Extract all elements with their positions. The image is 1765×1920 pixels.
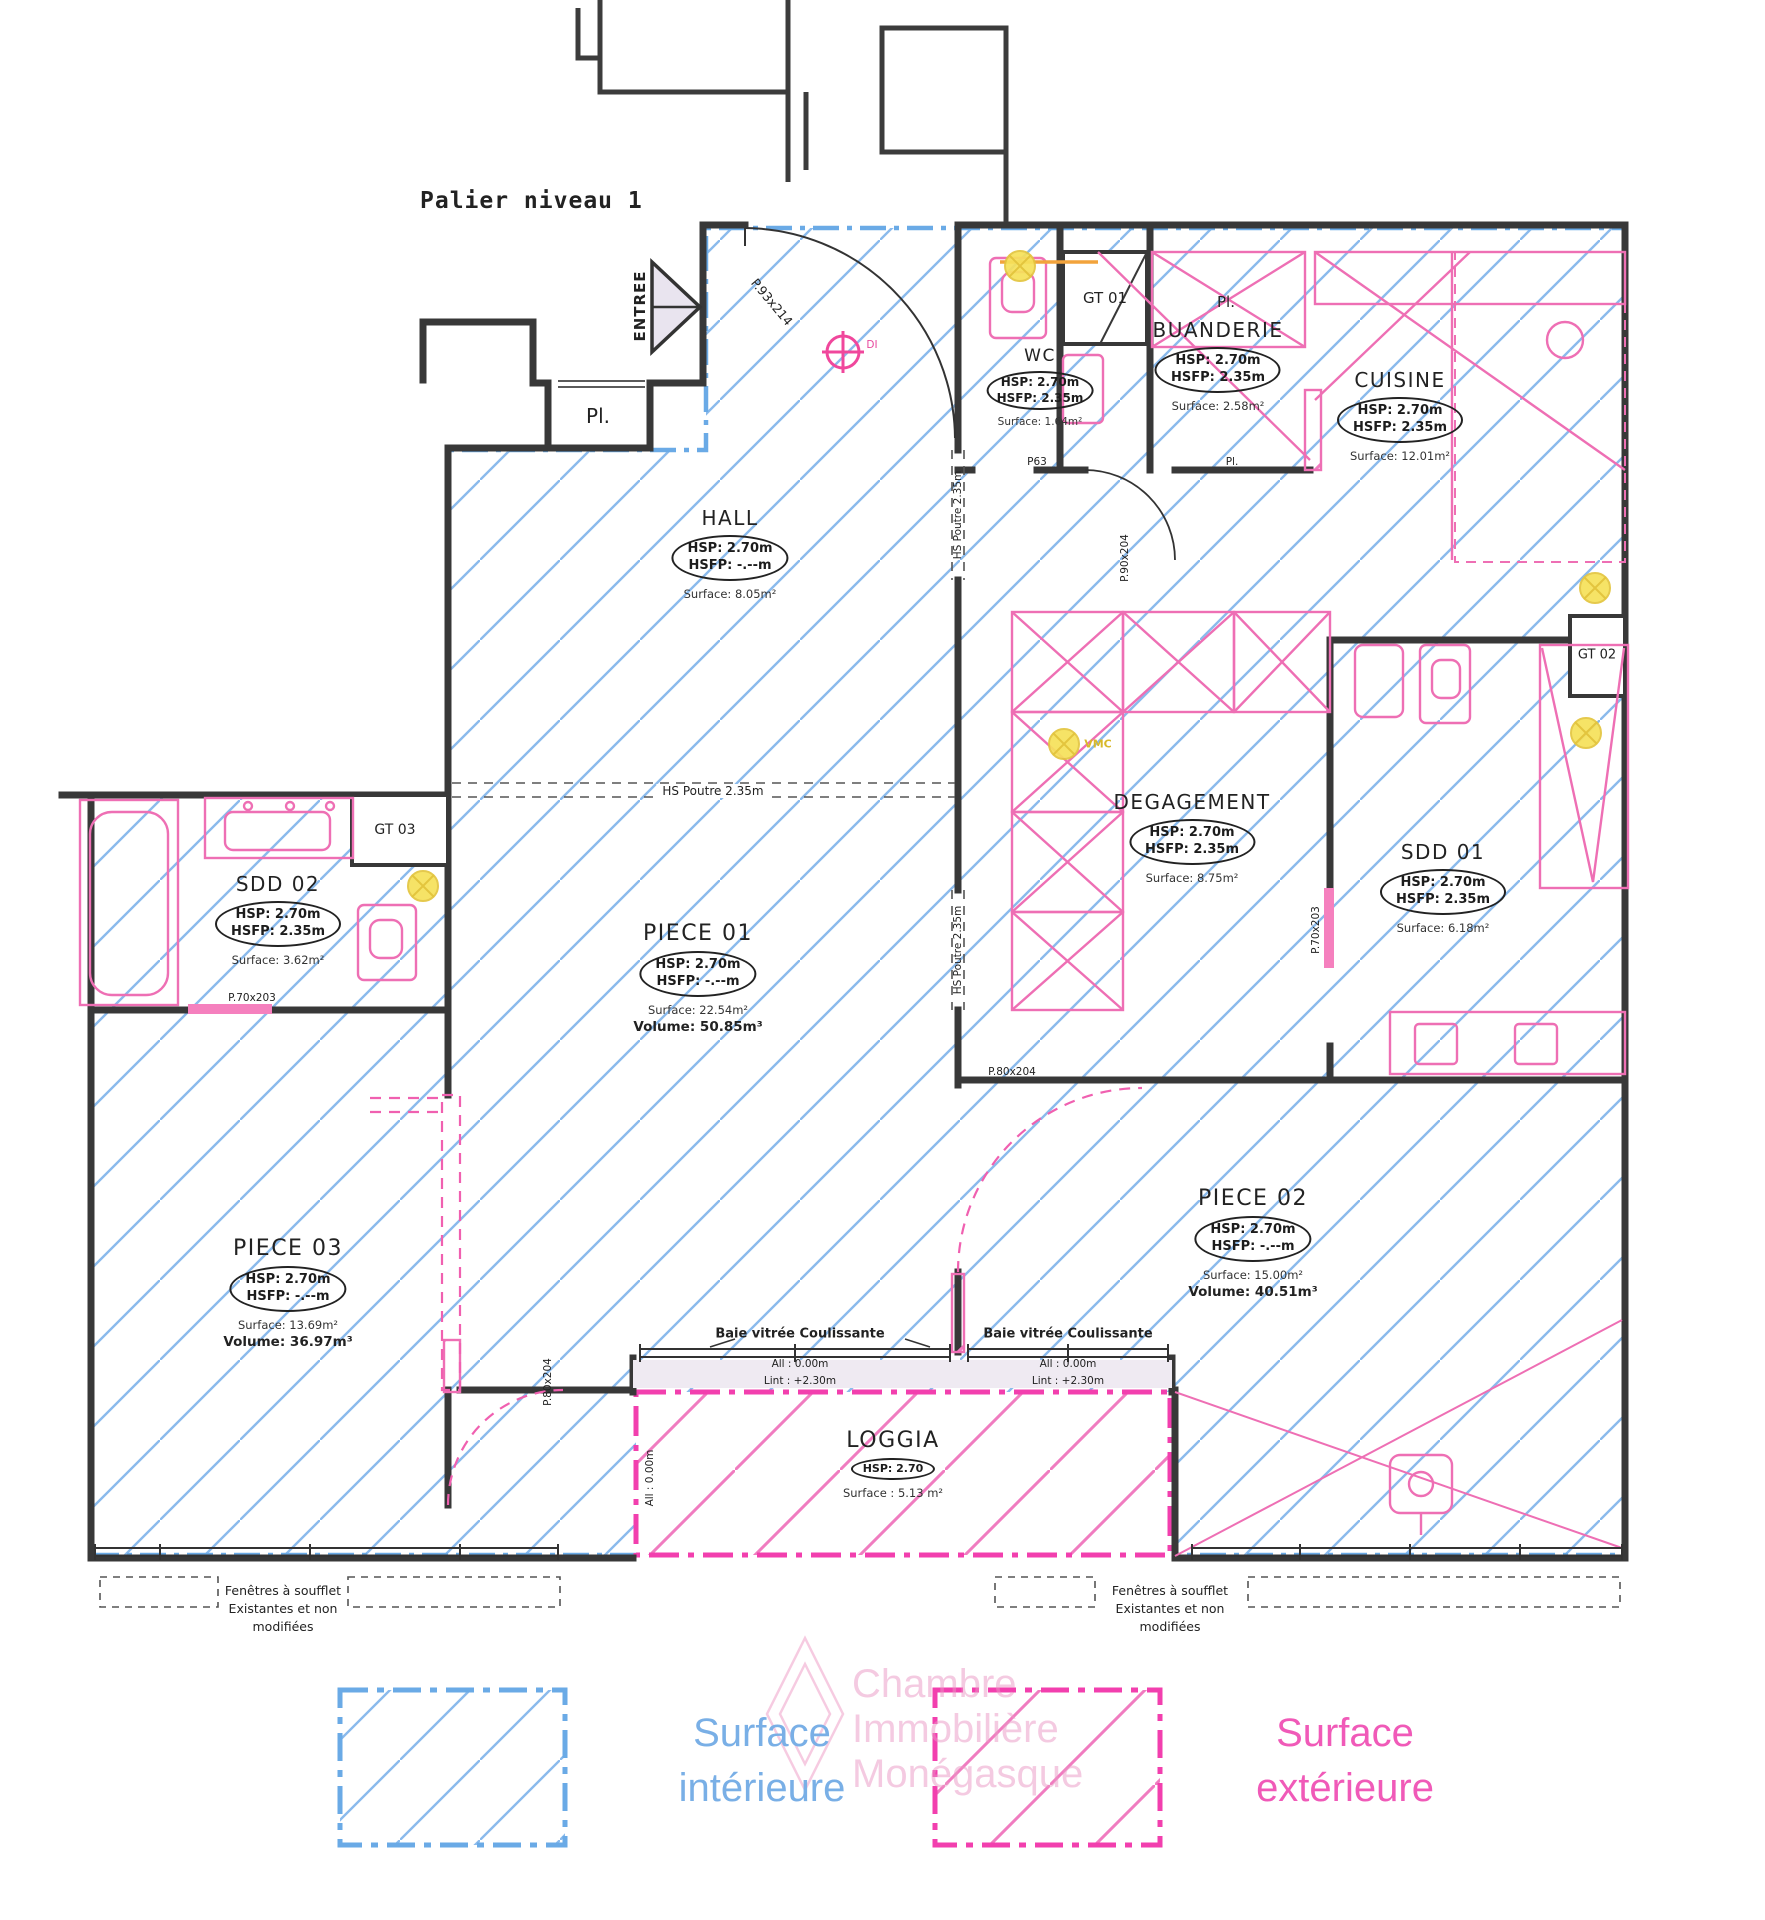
room-name: PIECE 01 [643,921,753,946]
window-note-line3: modifiées [225,1618,341,1636]
hsfp-value: HSFP: -.--m [656,974,739,991]
room-name: SDD 02 [236,872,320,896]
beam-upper-label: HS Poutre 2.35m [952,471,964,560]
room-name: CUISINE [1354,368,1445,392]
surface-value: Surface: 22.54m² [648,1003,748,1017]
hsp-value: HSP: 2.70m [1210,1222,1295,1239]
room-name: BUANDERIE [1153,318,1284,342]
hsp-value: HSP: 2.70m [1400,875,1485,892]
duct-gt03-label: GT 03 [374,822,415,838]
hsfp-value: HSFP: -.--m [246,1289,329,1306]
volume-value: Volume: 36.97m³ [223,1334,352,1350]
surface-value: Surface: 13.69m² [238,1318,338,1332]
height-oval: HSP: 2.70m HSFP: -.--m [229,1266,346,1312]
closet-buanderie-label: Pl. [1217,293,1235,311]
surface-value: Surface: 12.01m² [1350,449,1450,463]
window-note-line2: Existantes et non [225,1600,341,1618]
height-oval: HSP: 2.70m HSFP: 2.35m [987,371,1094,410]
window-note-line1: Fenêtres à soufflet [225,1582,341,1600]
height-oval: HSP: 2.70m HSFP: 2.35m [1155,347,1281,393]
height-oval: HSP: 2.70m HSFP: 2.35m [1380,869,1506,915]
legend-interior-label: Surface intérieure [679,1706,846,1816]
room-label-sdd02: SDD 02 HSP: 2.70m HSFP: 2.35m Surface: 3… [215,872,341,967]
legend-interior-line1: Surface [679,1706,846,1761]
height-oval: HSP: 2.70m HSFP: -.--m [1194,1216,1311,1262]
watermark-line2: Immobilière [852,1707,1083,1752]
legend-exterior-label: Surface extérieure [1256,1706,1434,1816]
vmc-label: VMC [1084,738,1112,751]
di-label: DI [866,339,877,351]
page-title: Palier niveau 1 [420,188,643,214]
room-name: DEGAGEMENT [1113,790,1270,814]
hsp-value: HSP: 2.70 [863,1462,924,1476]
window-note-line2: Existantes et non [1112,1600,1228,1618]
wc-door-size: P63 [1027,456,1047,468]
surface-value: Surface: 15.00m² [1203,1268,1303,1282]
height-oval: HSP: 2.70m HSFP: -.--m [671,535,788,581]
height-oval: HSP: 2.70m HSFP: 2.35m [1129,819,1255,865]
height-oval: HSP: 2.70m HSFP: 2.35m [215,901,341,947]
surface-value: Surface : 5.13 m² [843,1486,943,1500]
room-label-piece03: PIECE 03 HSP: 2.70m HSFP: -.--m Surface:… [223,1236,352,1350]
duct-gt02-label: GT 02 [1578,648,1616,663]
hsfp-value: HSFP: 2.35m [1353,420,1447,437]
room-name: PIECE 03 [233,1236,343,1261]
room-label-piece02: PIECE 02 HSP: 2.70m HSFP: -.--m Surface:… [1188,1186,1317,1300]
hsp-value: HSP: 2.70m [655,957,740,974]
window-note-right: Fenêtres à soufflet Existantes et non mo… [1112,1582,1228,1636]
room-label-sdd01: SDD 01 HSP: 2.70m HSFP: 2.35m Surface: 6… [1380,840,1506,935]
baie-left-linteau: Lint : +2.30m [764,1375,836,1387]
door-sdd02-size: P.70x203 [228,992,276,1004]
surface-value: Surface: 8.75m² [1146,871,1239,885]
hsfp-value: HSFP: 2.35m [997,391,1084,407]
hsfp-value: HSFP: -.--m [1211,1239,1294,1256]
hsfp-value: HSFP: 2.35m [1171,370,1265,387]
volume-value: Volume: 50.85m³ [633,1019,762,1035]
closet-landing-label: Pl. [586,404,610,428]
surface-value: Surface: 1.64m² [998,416,1083,428]
watermark-text: Chambre Immobilière Monégasque [852,1662,1083,1798]
door-piece03-size: P.80x204 [542,1358,554,1406]
surface-value: Surface: 8.05m² [684,587,777,601]
entrance-label: ENTREE [631,270,649,341]
watermark-line1: Chambre [852,1662,1083,1707]
duct-gt01-label: GT 01 [1083,289,1127,307]
loggia-allege: All : 0.00m [644,1450,656,1507]
baie-right-allege: All : 0.00m [1040,1358,1097,1370]
surface-value: Surface: 3.62m² [232,953,325,967]
room-label-buanderie: BUANDERIE HSP: 2.70m HSFP: 2.35m Surface… [1153,318,1284,413]
room-name: WC [1024,346,1056,366]
closet-corridor-label: Pl. [1226,456,1239,468]
legend-interior-swatch [340,1690,565,1845]
beam-lower-label: HS Poutre 2.35m [952,906,964,995]
hsfp-value: HSFP: 2.35m [231,924,325,941]
baie-right-linteau: Lint : +2.30m [1032,1375,1104,1387]
room-label-hall: HALL HSP: 2.70m HSFP: -.--m Surface: 8.0… [671,506,788,601]
room-label-wc: WC HSP: 2.70m HSFP: 2.35m Surface: 1.64m… [987,346,1094,428]
hsp-value: HSP: 2.70m [245,1272,330,1289]
surface-value: Surface: 2.58m² [1172,399,1265,413]
floor-plan-page: Palier niveau 1 ENTREE P.93x214 Pl. Pl. … [0,0,1765,1920]
legend-exterior-line1: Surface [1256,1706,1434,1761]
height-oval: HSP: 2.70m HSFP: -.--m [639,951,756,997]
baie-right-label: Baie vitrée Coulissante [983,1327,1152,1342]
hsfp-value: HSFP: 2.35m [1145,842,1239,859]
height-oval: HSP: 2.70m HSFP: 2.35m [1337,397,1463,443]
height-oval: HSP: 2.70 [851,1458,936,1480]
room-label-cuisine: CUISINE HSP: 2.70m HSFP: 2.35m Surface: … [1337,368,1463,463]
window-note-line1: Fenêtres à soufflet [1112,1582,1228,1600]
hsp-value: HSP: 2.70m [1357,403,1442,420]
hsp-value: HSP: 2.70m [1175,353,1260,370]
room-name: HALL [701,506,758,530]
beam-hall-label: HS Poutre 2.35m [656,784,769,798]
legend-interior-line2: intérieure [679,1761,846,1816]
watermark-line3: Monégasque [852,1752,1083,1797]
room-name: PIECE 02 [1198,1186,1308,1211]
room-label-piece01: PIECE 01 HSP: 2.70m HSFP: -.--m Surface:… [633,921,762,1035]
door-corridor-size: P.90x204 [1119,534,1131,582]
window-note-line3: modifiées [1112,1618,1228,1636]
hsfp-value: HSFP: -.--m [688,558,771,575]
landing-window [558,381,645,387]
baie-left-label: Baie vitrée Coulissante [715,1327,884,1342]
room-label-loggia: LOGGIA HSP: 2.70 Surface : 5.13 m² [843,1428,943,1500]
room-label-degagement: DEGAGEMENT HSP: 2.70m HSFP: 2.35m Surfac… [1113,790,1270,885]
hsp-value: HSP: 2.70m [1149,825,1234,842]
volume-value: Volume: 40.51m³ [1188,1284,1317,1300]
door-sdd01-size: P.70x203 [1310,906,1322,954]
entrance-arrow-icon [652,262,700,352]
window-note-left: Fenêtres à soufflet Existantes et non mo… [225,1582,341,1636]
room-name: SDD 01 [1401,840,1485,864]
hsp-value: HSP: 2.70m [1001,375,1080,391]
door-piece02-size: P.80x204 [988,1066,1036,1078]
room-name: LOGGIA [846,1428,939,1453]
baie-left-allege: All : 0.00m [772,1358,829,1370]
hsp-value: HSP: 2.70m [687,541,772,558]
legend-exterior-line2: extérieure [1256,1761,1434,1816]
hsp-value: HSP: 2.70m [235,907,320,924]
hsfp-value: HSFP: 2.35m [1396,892,1490,909]
surface-value: Surface: 6.18m² [1397,921,1490,935]
